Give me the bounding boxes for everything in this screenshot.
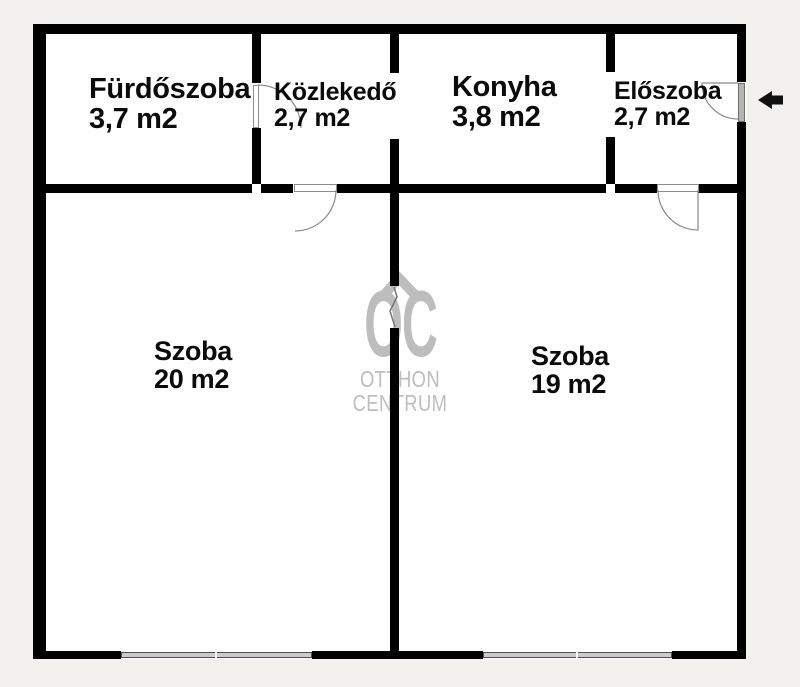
wall-outer-bottom-left bbox=[33, 651, 121, 659]
wall-outer-bottom-middle bbox=[312, 651, 483, 659]
room-area: 19 m2 bbox=[531, 370, 609, 398]
room-area: 2,7 m2 bbox=[274, 105, 396, 131]
wall-divider-seg6 bbox=[698, 184, 737, 193]
door-leaf-room20 bbox=[294, 184, 337, 192]
room-name: Közlekedő bbox=[274, 79, 396, 105]
wall-divider-seg3 bbox=[337, 184, 390, 193]
watermark-brand-line1: OTTHON bbox=[352, 368, 448, 391]
wall-bathroom-hall-lower bbox=[252, 128, 261, 184]
wall-outer-right-lower bbox=[737, 122, 746, 659]
room-area: 3,7 m2 bbox=[89, 104, 250, 134]
window-room19-divider bbox=[576, 652, 578, 658]
room-name: Konyha bbox=[452, 72, 557, 102]
wall-outer-bottom-right bbox=[672, 651, 746, 659]
room-area: 3,8 m2 bbox=[452, 102, 557, 132]
window-room20-divider bbox=[215, 652, 217, 658]
room-name: Szoba bbox=[154, 337, 232, 365]
room-name: Fürdőszoba bbox=[89, 74, 250, 104]
floor-plan: OC OTTHON CENTRUM bbox=[0, 0, 800, 687]
wall-divider-seg4 bbox=[399, 184, 606, 193]
room-label-eloszoba: Előszoba 2,7 m2 bbox=[614, 78, 721, 131]
wall-kitchen-entry-upper bbox=[606, 24, 615, 72]
wall-kitchen-entry-lower bbox=[606, 137, 615, 184]
room-area: 20 m2 bbox=[154, 365, 232, 393]
room-area: 2,7 m2 bbox=[614, 104, 721, 130]
room-name: Szoba bbox=[531, 342, 609, 370]
door-leaf-bathroom bbox=[253, 85, 259, 128]
wall-hall-kitchen-lower bbox=[390, 139, 399, 184]
door-leaf-entrance bbox=[738, 83, 745, 122]
wall-divider-seg2 bbox=[261, 184, 293, 193]
wall-divider-seg5 bbox=[615, 184, 657, 193]
door-leaf-room19 bbox=[657, 184, 699, 192]
wall-bathroom-hall-upper bbox=[252, 24, 261, 83]
wall-rooms-upper bbox=[390, 184, 399, 286]
room-label-konyha: Konyha 3,8 m2 bbox=[452, 72, 557, 133]
room-label-szoba-20: Szoba 20 m2 bbox=[154, 337, 232, 394]
wall-outer-right-upper bbox=[737, 24, 746, 82]
wall-hall-kitchen-upper bbox=[390, 24, 399, 73]
watermark-brand-line2: CENTRUM bbox=[352, 392, 448, 415]
room-label-furdoszoba: Fürdőszoba 3,7 m2 bbox=[89, 74, 250, 135]
wall-divider-seg1 bbox=[33, 184, 252, 193]
wall-rooms-lower bbox=[390, 328, 399, 651]
room-name: Előszoba bbox=[614, 78, 721, 104]
wall-outer-left bbox=[33, 24, 46, 659]
room-label-kozlekedo: Közlekedő 2,7 m2 bbox=[274, 79, 396, 132]
room-label-szoba-19: Szoba 19 m2 bbox=[531, 342, 609, 399]
